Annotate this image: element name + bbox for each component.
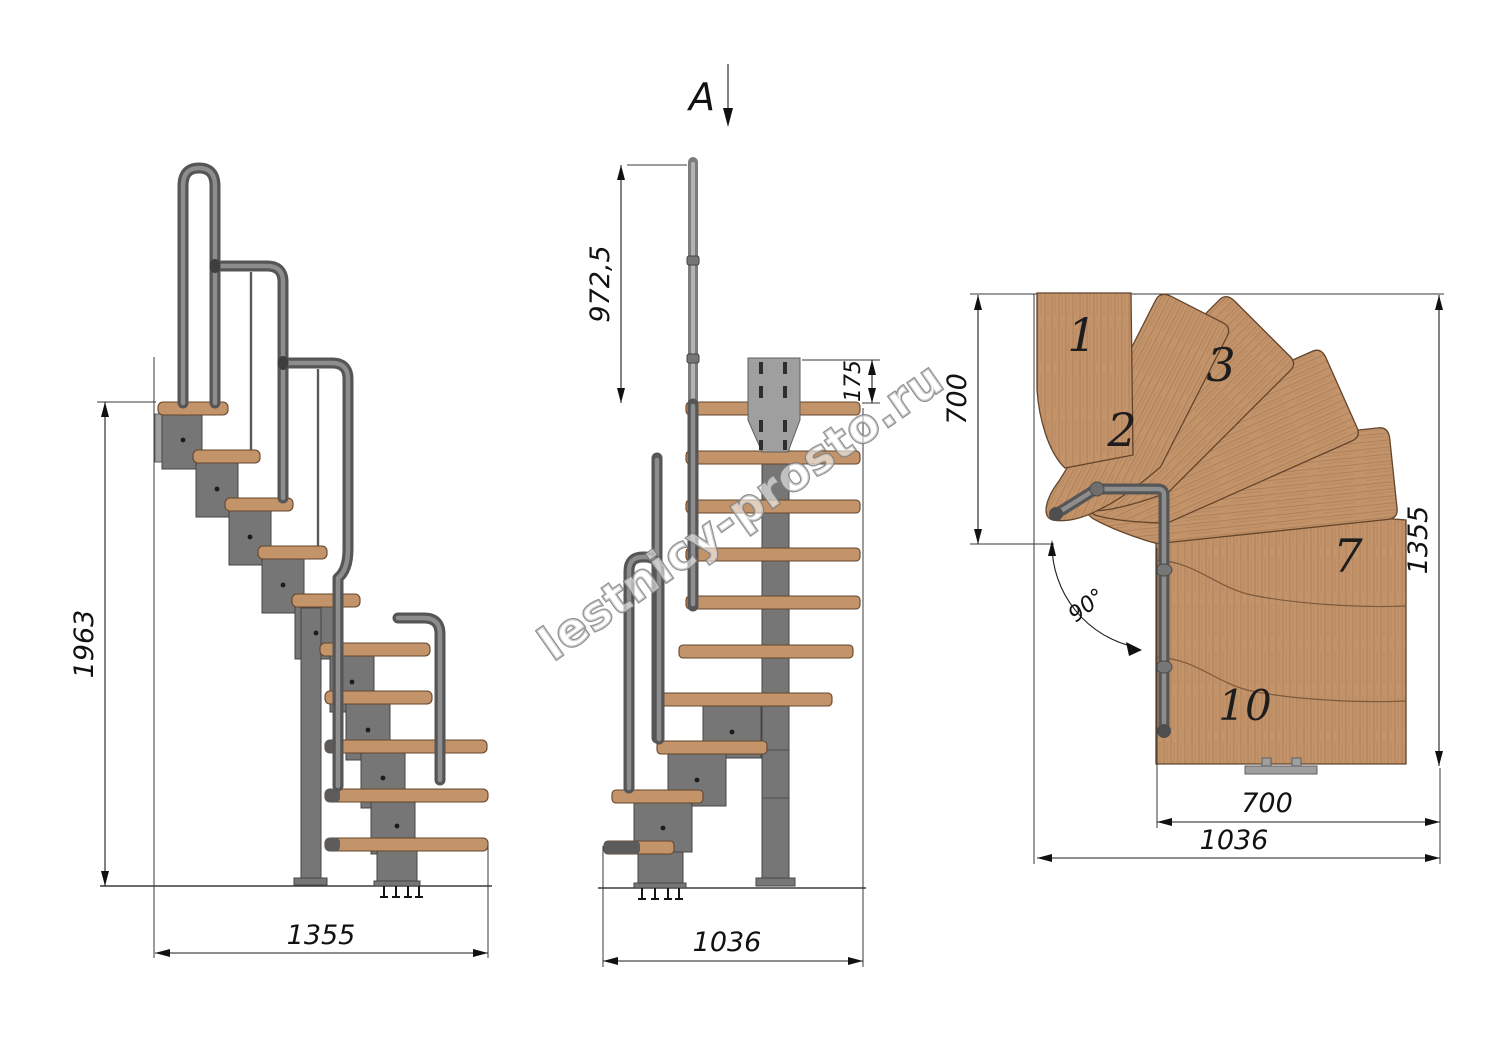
mounting-bracket-plate <box>748 358 800 452</box>
side-elevation-view: 1963 1355 <box>69 168 492 958</box>
watermark: lestnicy-prosto.ru <box>529 351 953 671</box>
turn-column-base <box>294 878 327 885</box>
section-arrow: A <box>686 64 733 127</box>
dim-front-width: 1036 <box>693 927 762 958</box>
drawing-sheet: 1963 1355 A <box>0 0 1500 1061</box>
tread-number-2: 2 <box>1106 403 1136 457</box>
post-joint <box>687 256 699 265</box>
handrail-loop-top <box>183 168 215 403</box>
tread-number-10: 10 <box>1218 681 1271 730</box>
rail-joint <box>1156 564 1172 576</box>
staircase-technical-drawing: 1963 1355 A <box>0 0 1500 1061</box>
rail-end-cap <box>1049 507 1063 521</box>
tread-number-7: 7 <box>1333 529 1363 583</box>
dim-turn-angle: 90° <box>1064 584 1110 628</box>
column-base <box>756 878 795 886</box>
tread-number-1: 1 <box>1067 308 1096 362</box>
section-direction-arrow <box>723 108 733 127</box>
post-joint <box>687 354 699 363</box>
turn-column <box>301 608 321 880</box>
rail-clamp <box>278 356 289 370</box>
dim-flight-width: 700 <box>1241 788 1293 819</box>
plan-view: 1 2 3 7 10 700 1355 90° 700 <box>942 288 1444 864</box>
dim-total-depth: 1355 <box>1403 506 1434 575</box>
tread-number-3: 3 <box>1206 338 1235 392</box>
anchor-bolts <box>380 886 423 897</box>
rail-joint <box>1156 661 1172 673</box>
dim-handrail-height: 972,5 <box>585 245 616 322</box>
rail-clamp <box>210 259 221 273</box>
rail-end-cap <box>1157 724 1171 738</box>
section-label: A <box>686 75 715 119</box>
dim-total-height: 1963 <box>69 610 100 679</box>
dim-total-width: 1036 <box>1200 825 1269 856</box>
dim-total-run: 1355 <box>287 920 356 951</box>
